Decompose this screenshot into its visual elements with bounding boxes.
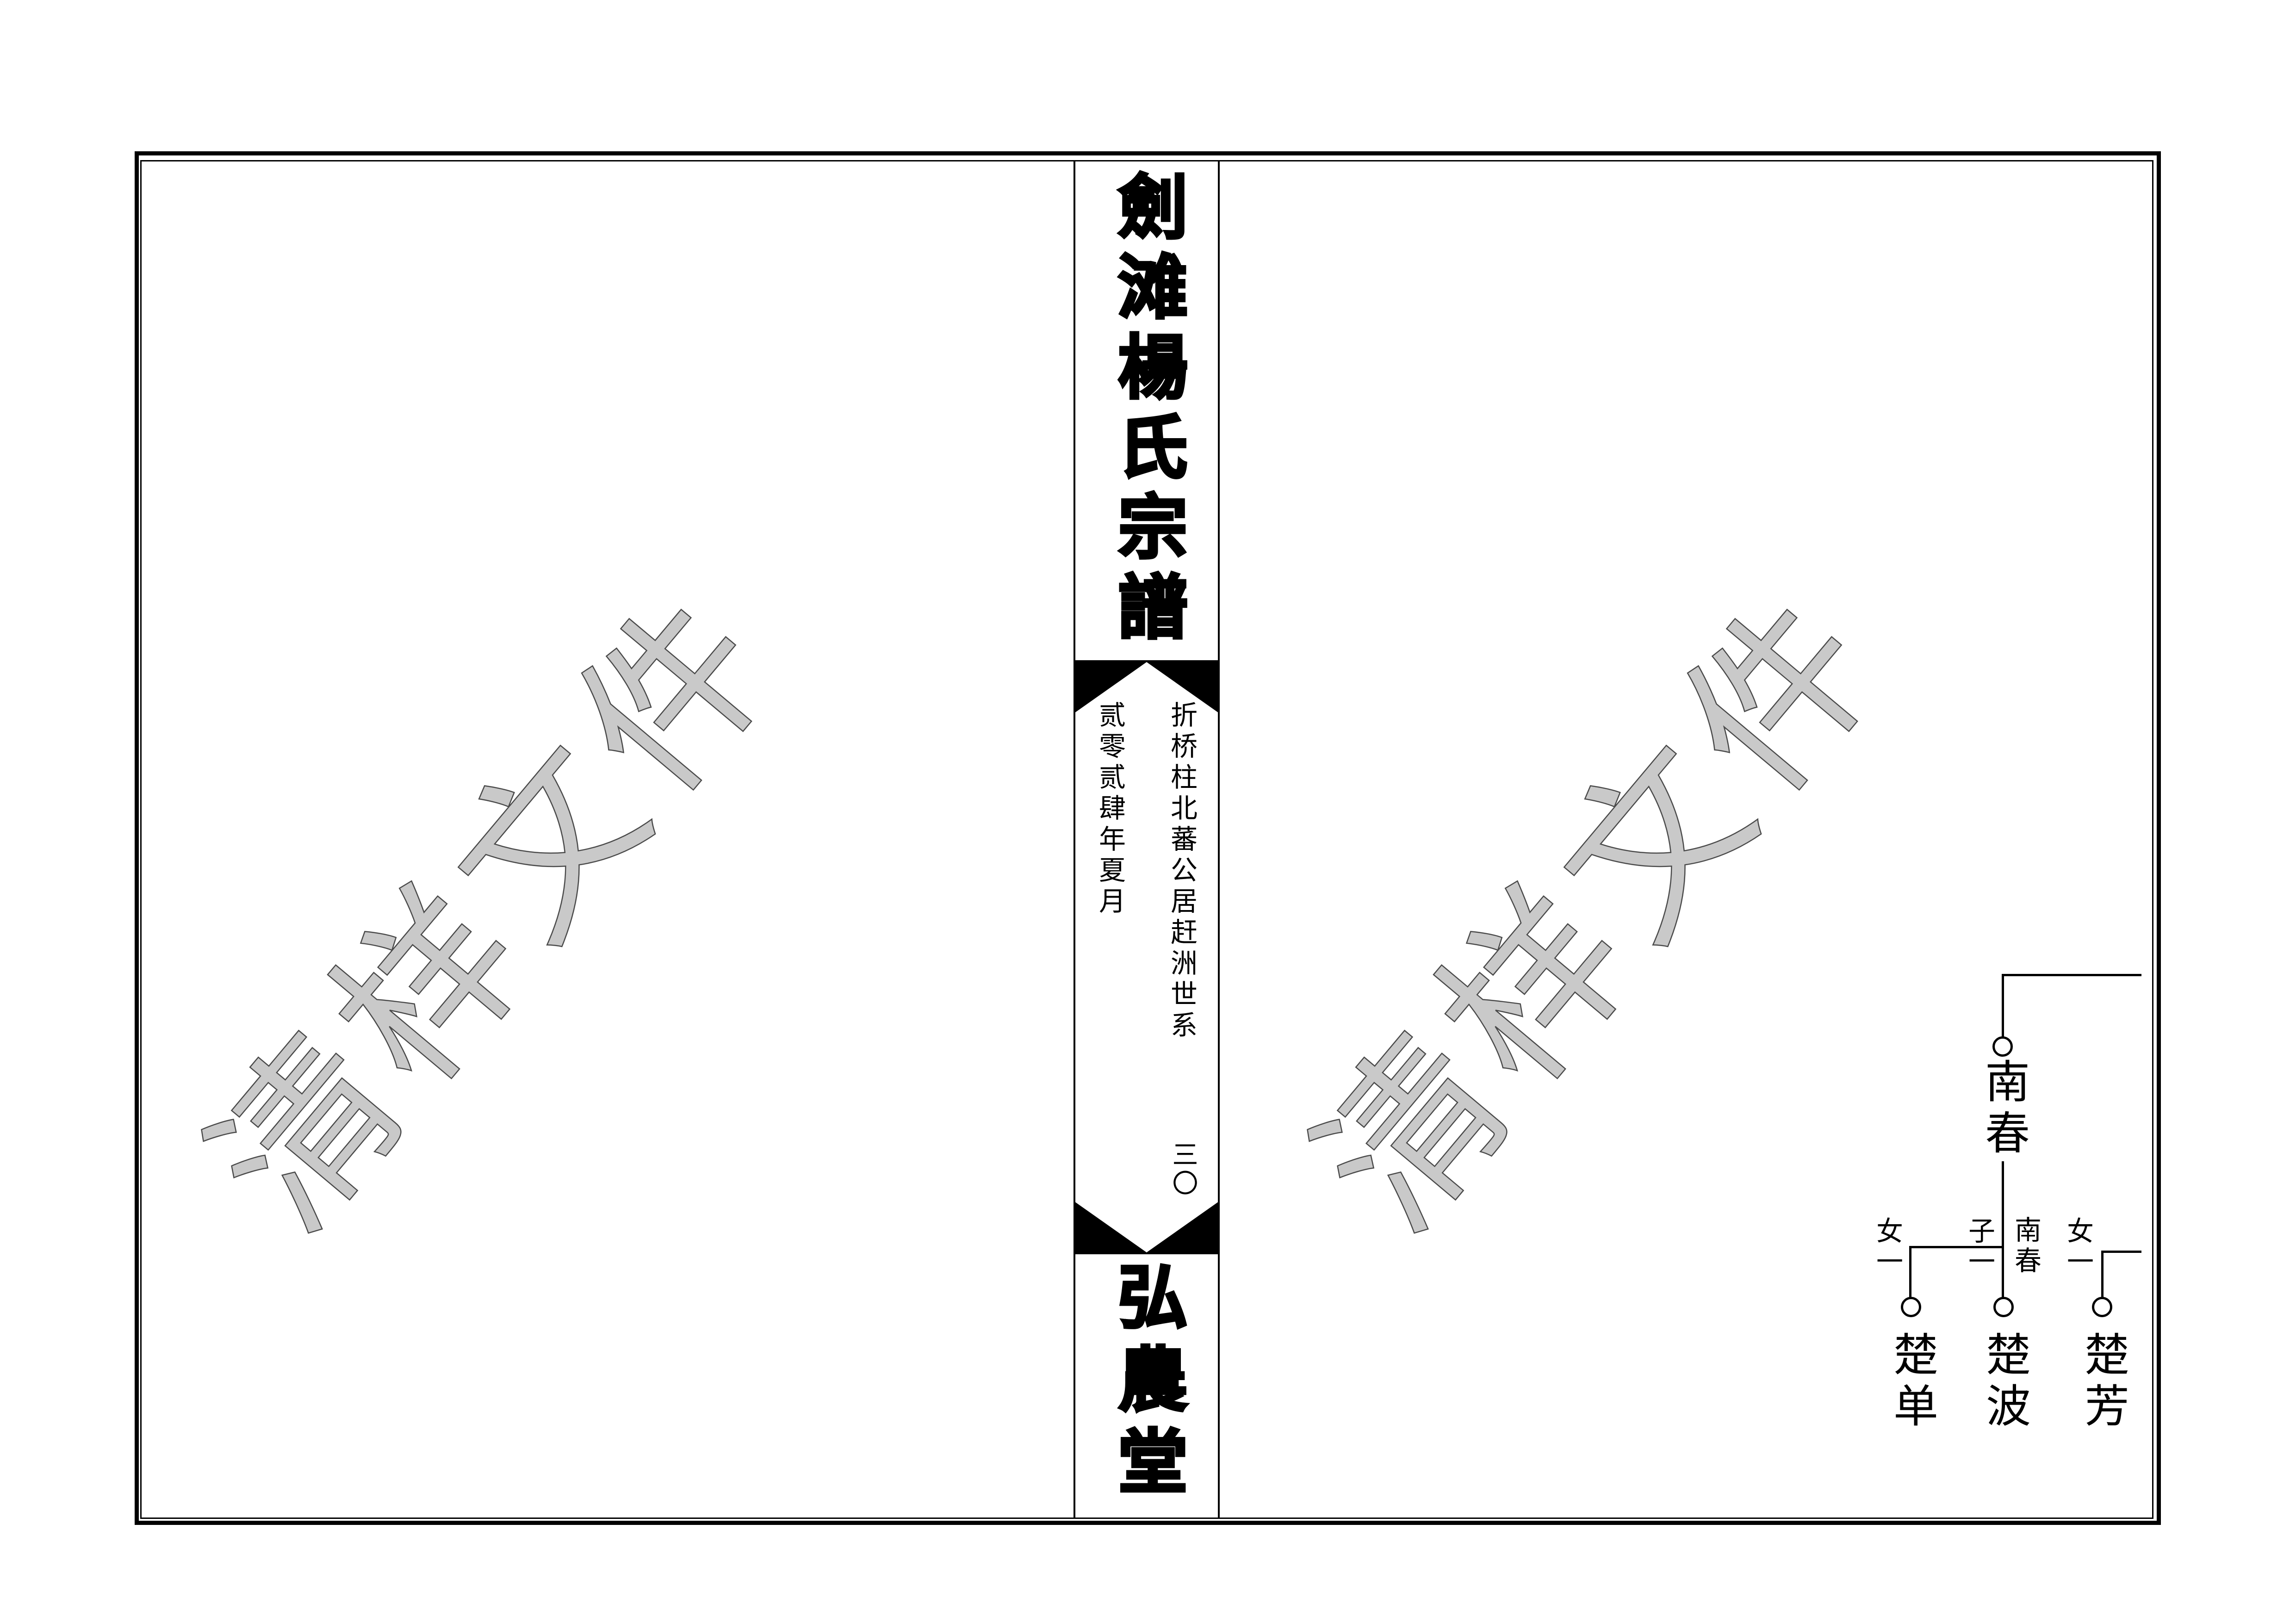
spine-border-right [1218, 161, 1220, 1518]
genealogy-spread: 清样文件 清样文件 劍滩楊氏宗譜 折桥柱北蕃公居赶洲世系 贰零贰肆年夏月 三〇 … [0, 0, 2296, 1623]
tree-node-circle-child-1 [1901, 1297, 1921, 1317]
spine-border-left [1074, 161, 1075, 1518]
tree-label-child-2: 子一 [1963, 1217, 1995, 1286]
tree-line-descent [2002, 1161, 2004, 1298]
spine-book-title: 劍滩楊氏宗譜 [1095, 171, 1197, 657]
tree-line-drop-child-3 [2101, 1251, 2104, 1298]
tree-label-child-1: 女一 [1871, 1217, 1903, 1286]
spine-hall-name: 弘農堂 [1088, 1261, 1204, 1520]
tree-node-circle-ancestor [1992, 1036, 2013, 1057]
tree-label-child-3: 女一 [2061, 1217, 2094, 1286]
fishtail-lower-icon [1074, 1202, 1219, 1252]
tree-line-drop-child-1 [1909, 1246, 1911, 1298]
tree-line-ancestor-top-horizontal [2003, 974, 2141, 976]
tree-node-circle-child-2 [1993, 1297, 2014, 1317]
spine-date: 贰零贰肆年夏月 [1086, 701, 1133, 951]
tree-name-child-2: 楚波 [1976, 1331, 2031, 1437]
spine-rule-bottom [1074, 1252, 1219, 1254]
tree-line-ancestor-drop [2002, 974, 2004, 1037]
tree-name-child-1: 楚单 [1883, 1331, 1939, 1437]
tree-line-junction-right [2102, 1251, 2141, 1253]
tree-label-parent-ref: 南春 [2009, 1216, 2042, 1285]
spine-page-number: 三〇 [1160, 1141, 1206, 1206]
spine-lineage-heading: 折桥柱北蕃公居赶洲世系 [1158, 701, 1204, 1062]
tree-name-child-3: 楚芳 [2074, 1331, 2130, 1437]
tree-name-ancestor: 南春 [1975, 1058, 2030, 1165]
tree-node-circle-child-3 [2092, 1297, 2112, 1317]
